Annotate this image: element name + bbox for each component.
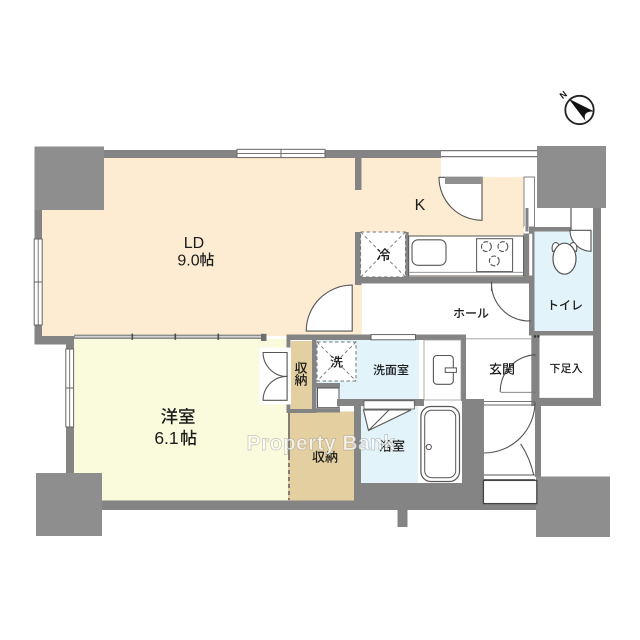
svg-text:Property Bank: Property Bank xyxy=(247,432,396,455)
svg-text:LD: LD xyxy=(184,235,204,252)
svg-text:K: K xyxy=(415,197,426,214)
svg-text:N: N xyxy=(558,89,569,101)
svg-text:9.0: 9.0 xyxy=(177,252,199,269)
svg-text:6.1: 6.1 xyxy=(154,428,178,448)
